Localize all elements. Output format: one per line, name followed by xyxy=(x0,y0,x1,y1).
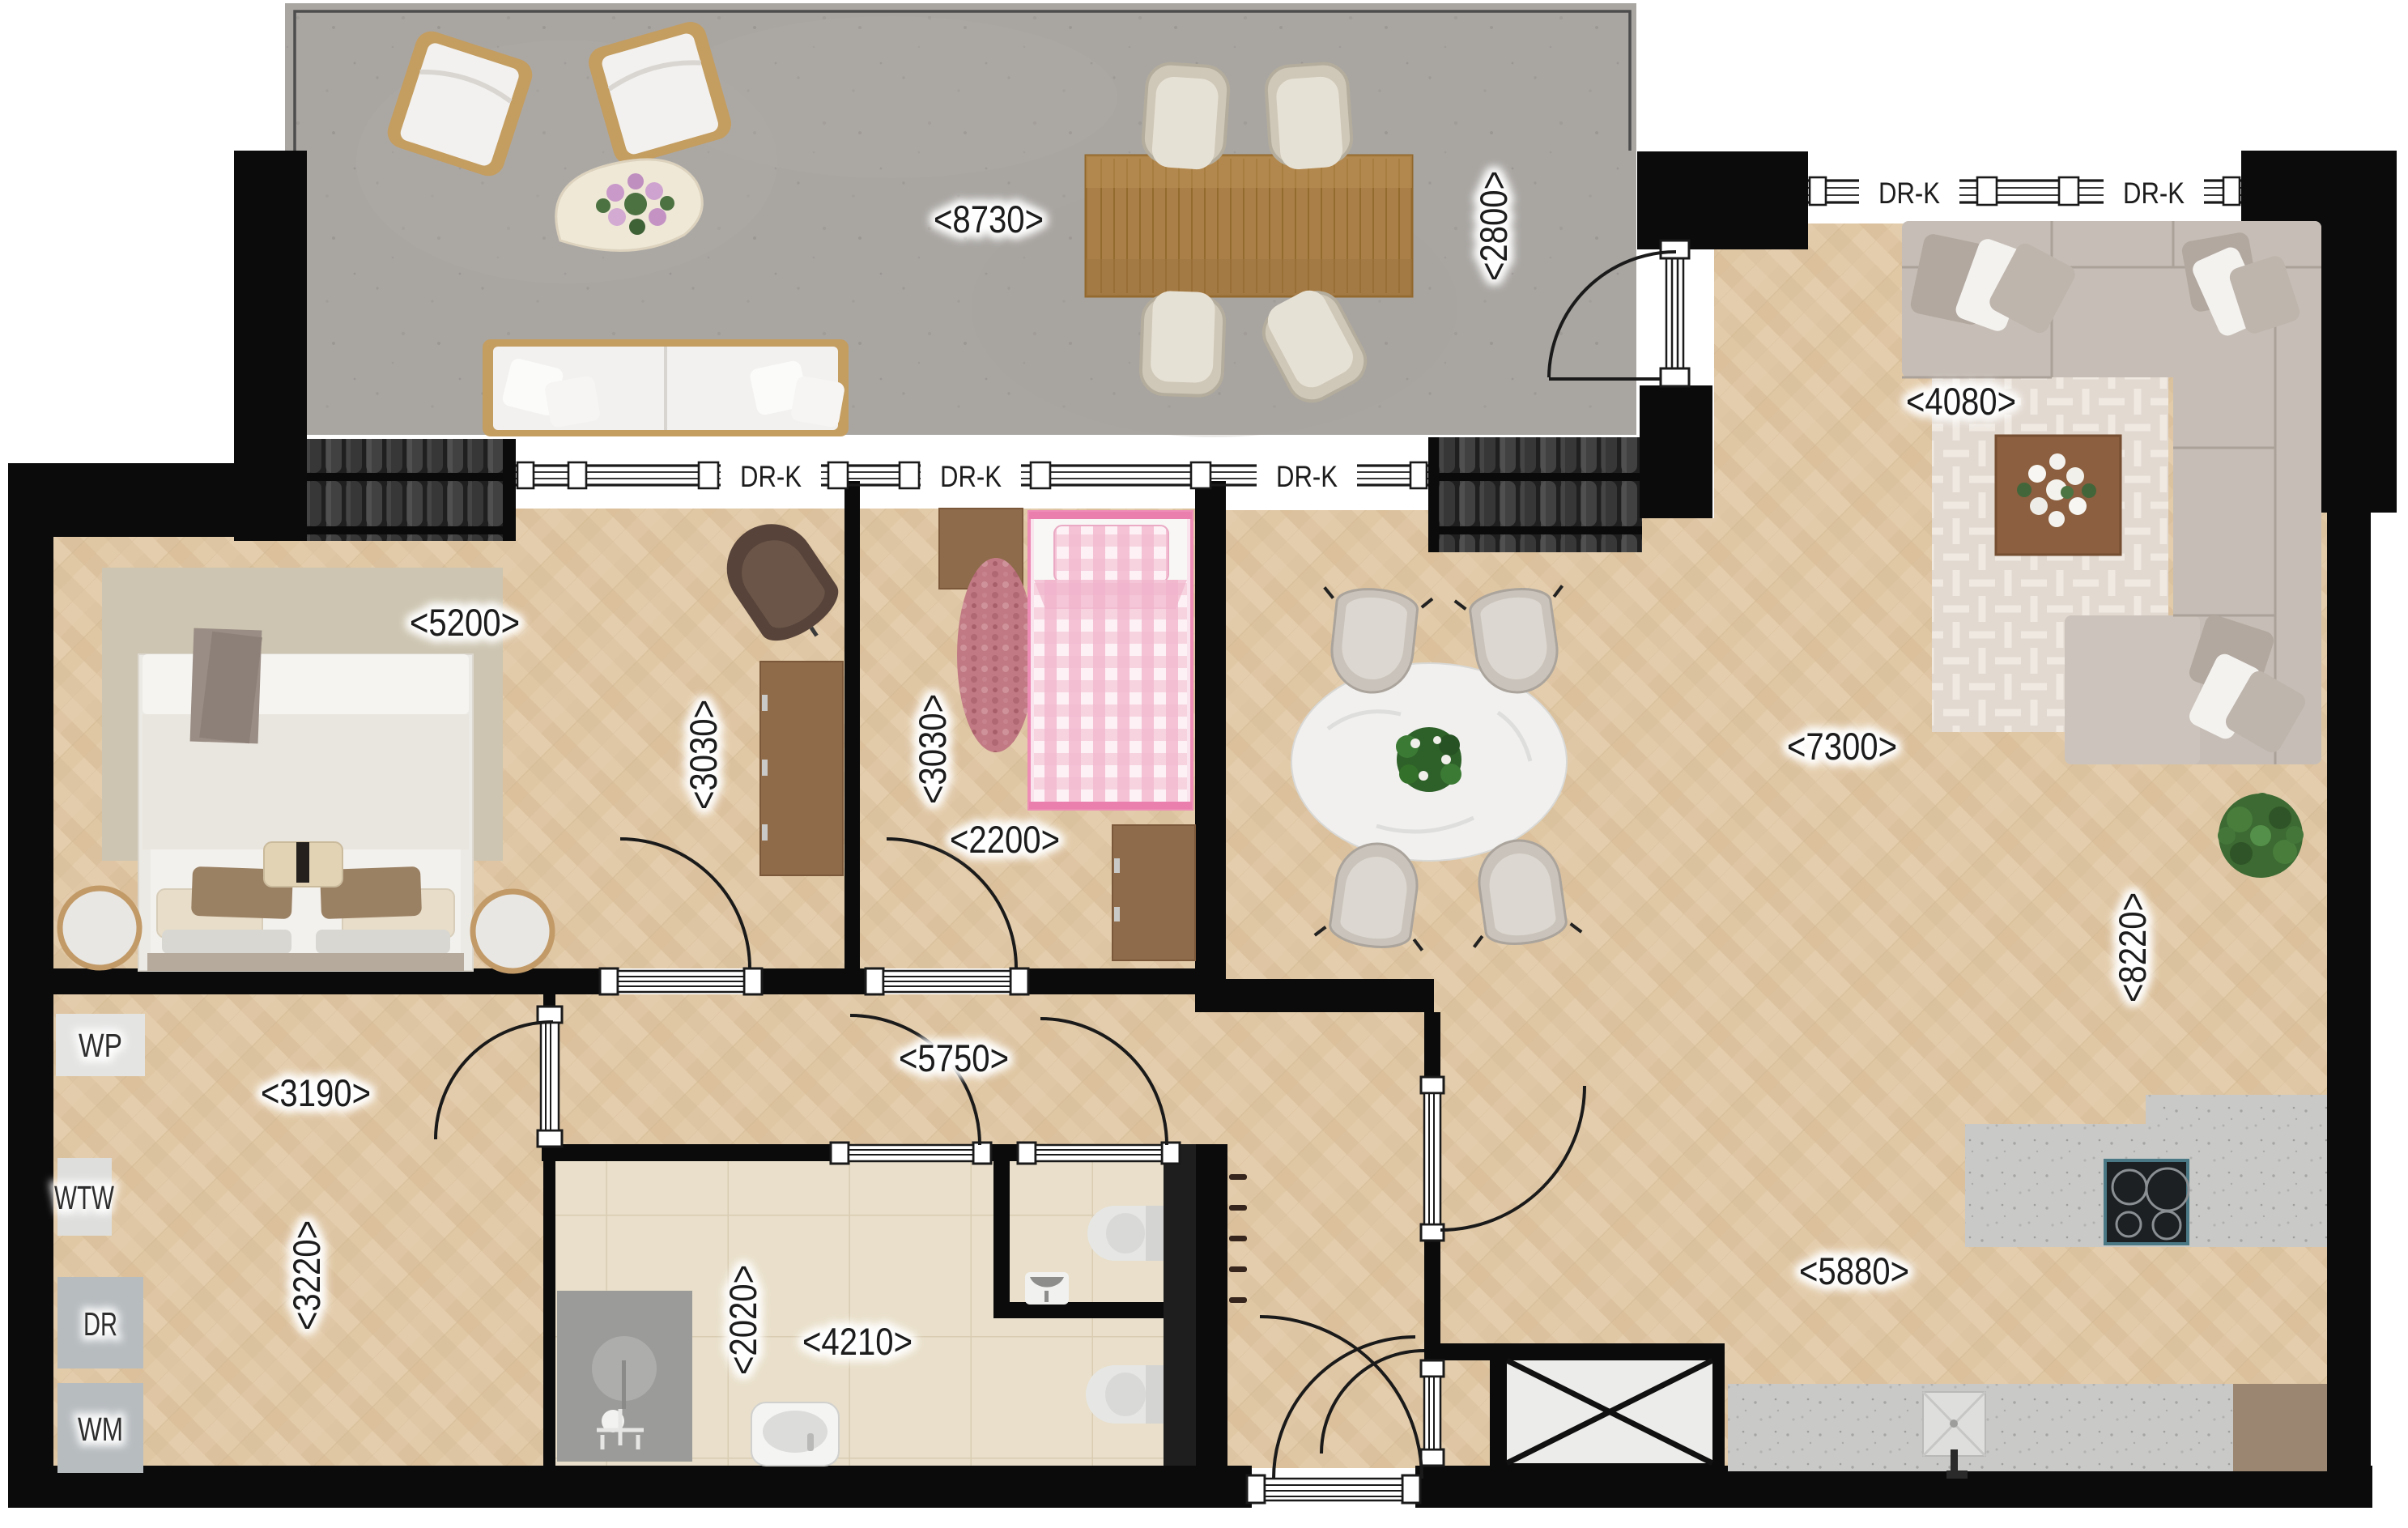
svg-text:<3030>: <3030> xyxy=(911,694,954,804)
svg-text:DR-K: DR-K xyxy=(1276,460,1338,493)
svg-text:<8730>: <8730> xyxy=(934,198,1044,240)
svg-text:<4080>: <4080> xyxy=(1906,380,2016,423)
svg-text:DR-K: DR-K xyxy=(740,460,802,493)
svg-text:<3220>: <3220> xyxy=(285,1220,328,1330)
svg-text:WTW: WTW xyxy=(54,1179,114,1216)
svg-text:<4210>: <4210> xyxy=(802,1320,913,1363)
svg-text:<2020>: <2020> xyxy=(721,1265,764,1375)
svg-text:DR-K: DR-K xyxy=(1878,177,1940,210)
svg-text:DR-K: DR-K xyxy=(940,460,1002,493)
svg-text:<3030>: <3030> xyxy=(682,700,725,810)
svg-text:<2800>: <2800> xyxy=(1472,171,1515,281)
svg-text:<7300>: <7300> xyxy=(1787,725,1897,768)
svg-text:<2200>: <2200> xyxy=(950,818,1060,861)
svg-text:<8220>: <8220> xyxy=(2111,892,2154,1002)
svg-text:<5880>: <5880> xyxy=(1799,1249,1909,1292)
svg-text:<5200>: <5200> xyxy=(410,601,520,644)
svg-text:WP: WP xyxy=(79,1027,122,1064)
svg-text:WM: WM xyxy=(78,1411,123,1448)
svg-text:DR-K: DR-K xyxy=(2123,177,2185,210)
svg-text:<3190>: <3190> xyxy=(261,1071,371,1114)
svg-text:DR: DR xyxy=(83,1305,117,1343)
svg-text:<5750>: <5750> xyxy=(899,1036,1009,1079)
